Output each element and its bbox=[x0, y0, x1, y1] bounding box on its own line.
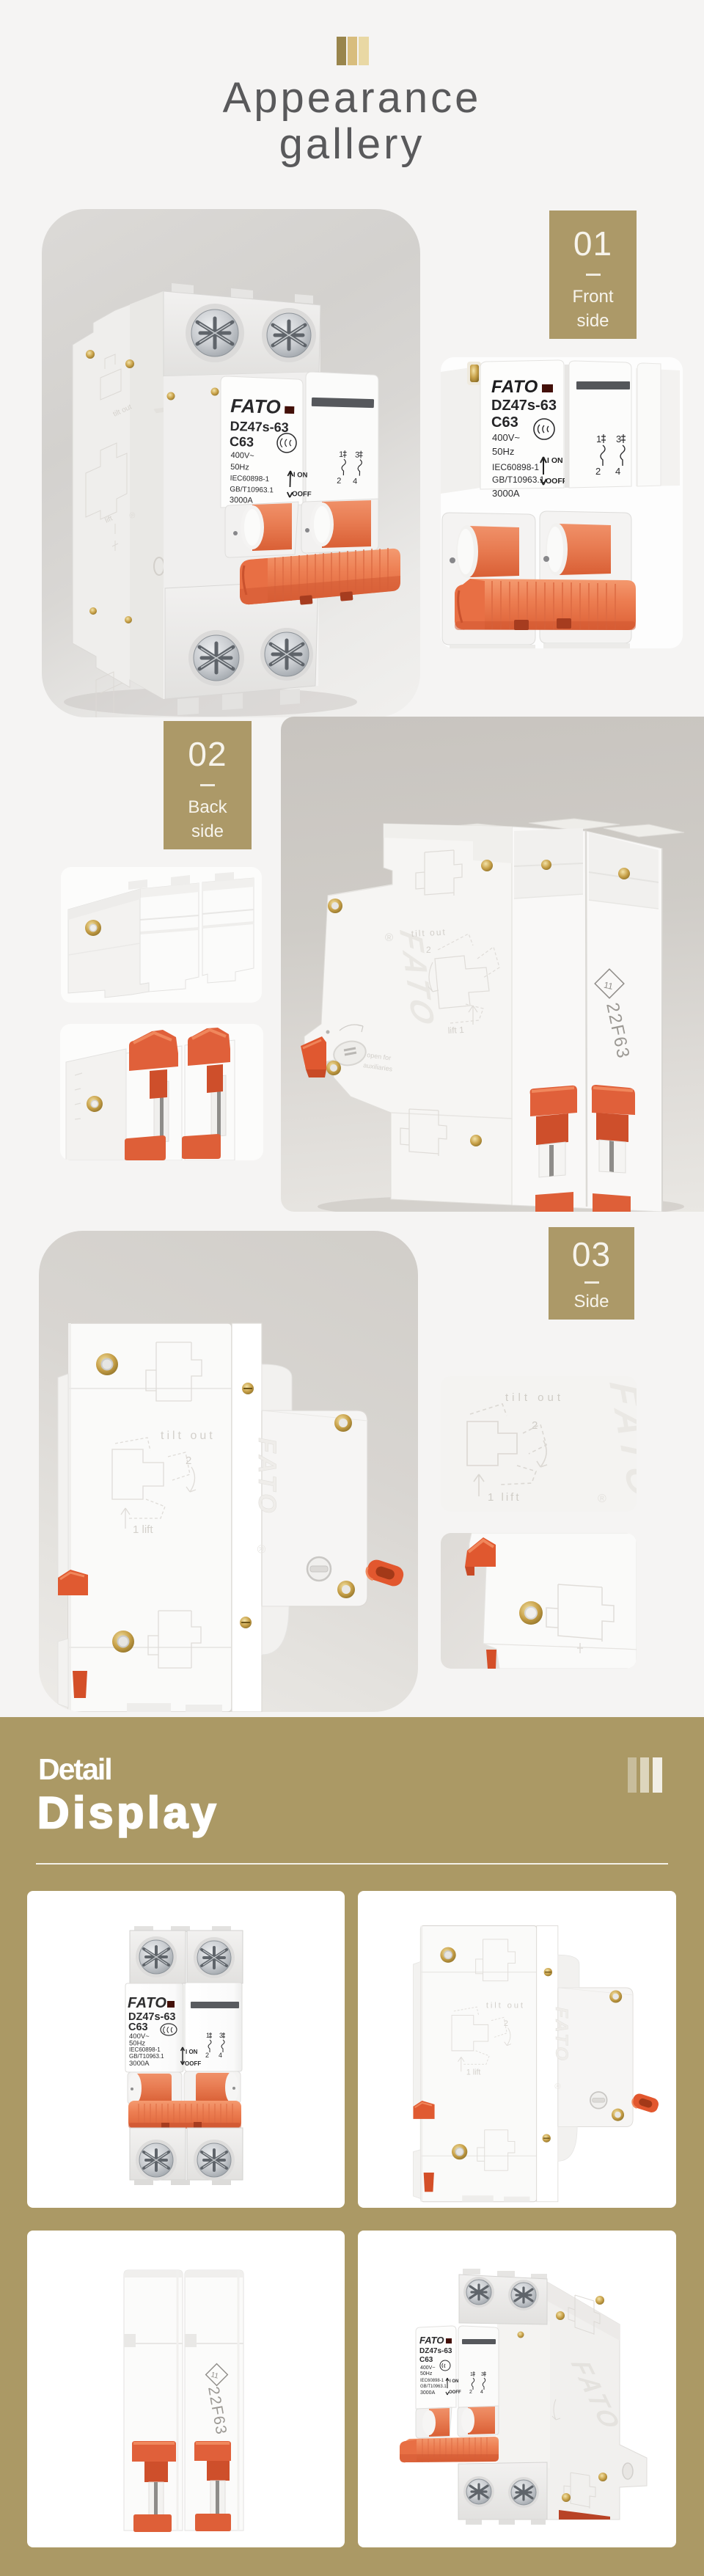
svg-text:1 lift: 1 lift bbox=[133, 1523, 153, 1536]
svg-text:tilt out: tilt out bbox=[161, 1430, 216, 1442]
svg-text:®: ® bbox=[598, 1493, 606, 1505]
svg-text:2: 2 bbox=[469, 2390, 472, 2395]
svg-text:GB/T10963.1: GB/T10963.1 bbox=[420, 2385, 447, 2389]
svg-text:2: 2 bbox=[426, 945, 431, 955]
svg-text:2: 2 bbox=[532, 1419, 538, 1432]
svg-text:I ON: I ON bbox=[293, 471, 308, 480]
svg-text:OOFF: OOFF bbox=[185, 2060, 201, 2067]
svg-text:®: ® bbox=[385, 932, 393, 944]
svg-text:GB/T10963.1: GB/T10963.1 bbox=[492, 475, 545, 485]
svg-text:OOFF: OOFF bbox=[449, 2390, 461, 2395]
svg-text:DZ47s-63: DZ47s-63 bbox=[419, 2347, 452, 2355]
svg-text:I ON: I ON bbox=[186, 2049, 198, 2055]
svg-text:tilt out: tilt out bbox=[505, 1391, 564, 1404]
svg-text:4: 4 bbox=[219, 2052, 222, 2059]
svg-text:2: 2 bbox=[337, 477, 341, 486]
svg-text:DZ47s-63: DZ47s-63 bbox=[230, 419, 289, 435]
svg-text:IEC60898-1: IEC60898-1 bbox=[492, 462, 539, 472]
svg-text:IEC60898-1: IEC60898-1 bbox=[230, 475, 270, 483]
svg-text:1: 1 bbox=[470, 2372, 473, 2377]
svg-text:3000A: 3000A bbox=[492, 488, 520, 499]
svg-text:FATO: FATO bbox=[419, 2335, 444, 2346]
svg-text:C63: C63 bbox=[491, 414, 518, 431]
svg-text:C63: C63 bbox=[419, 2356, 433, 2364]
svg-text:FATO: FATO bbox=[253, 1438, 281, 1517]
svg-text:3: 3 bbox=[616, 433, 621, 444]
svg-text:1: 1 bbox=[206, 2032, 210, 2039]
svg-text:3: 3 bbox=[481, 2372, 484, 2377]
svg-text:C63: C63 bbox=[128, 2021, 148, 2033]
svg-text:2: 2 bbox=[595, 466, 601, 477]
svg-text:2: 2 bbox=[205, 2052, 209, 2059]
svg-text:400V~: 400V~ bbox=[420, 2365, 435, 2371]
svg-text:DZ47s-63: DZ47s-63 bbox=[491, 398, 557, 414]
svg-text:1 lift: 1 lift bbox=[488, 1491, 521, 1504]
svg-text:FATO: FATO bbox=[128, 1995, 166, 2011]
svg-text:3000A: 3000A bbox=[129, 2060, 150, 2068]
svg-text:3: 3 bbox=[219, 2032, 223, 2039]
svg-text:400V~: 400V~ bbox=[492, 432, 520, 443]
svg-text:GB/T10963.1: GB/T10963.1 bbox=[129, 2053, 164, 2060]
svg-text:50Hz: 50Hz bbox=[230, 463, 249, 472]
svg-text:FATO: FATO bbox=[601, 1382, 637, 1503]
svg-text:OOFF: OOFF bbox=[546, 477, 568, 486]
svg-text:FATO: FATO bbox=[491, 377, 538, 397]
svg-text:4: 4 bbox=[353, 477, 357, 486]
svg-text:400V~: 400V~ bbox=[230, 451, 254, 461]
svg-text:I ON: I ON bbox=[450, 2379, 458, 2384]
svg-text:GB/T10963.1: GB/T10963.1 bbox=[230, 486, 274, 495]
svg-text:3: 3 bbox=[355, 450, 359, 459]
svg-text:50Hz: 50Hz bbox=[420, 2371, 433, 2376]
svg-text:1: 1 bbox=[339, 450, 343, 459]
svg-text:3000A: 3000A bbox=[230, 496, 254, 505]
svg-text:tilt out: tilt out bbox=[411, 927, 447, 939]
svg-text:IEC60898-1: IEC60898-1 bbox=[129, 2046, 161, 2053]
svg-text:IEC60898-1: IEC60898-1 bbox=[420, 2379, 444, 2383]
svg-text:2: 2 bbox=[186, 1455, 191, 1467]
svg-text:1: 1 bbox=[596, 433, 601, 444]
svg-text:50Hz: 50Hz bbox=[492, 446, 514, 457]
svg-text:®: ® bbox=[254, 1545, 267, 1554]
svg-text:lift 1: lift 1 bbox=[447, 1025, 464, 1036]
svg-text:C63: C63 bbox=[230, 434, 254, 450]
svg-text:4: 4 bbox=[615, 466, 620, 477]
svg-text:3000A: 3000A bbox=[420, 2390, 436, 2396]
svg-text:FATO: FATO bbox=[230, 395, 282, 418]
svg-text:4: 4 bbox=[480, 2390, 483, 2395]
svg-text:I ON: I ON bbox=[547, 456, 563, 465]
svg-text:OOFF: OOFF bbox=[292, 490, 312, 499]
